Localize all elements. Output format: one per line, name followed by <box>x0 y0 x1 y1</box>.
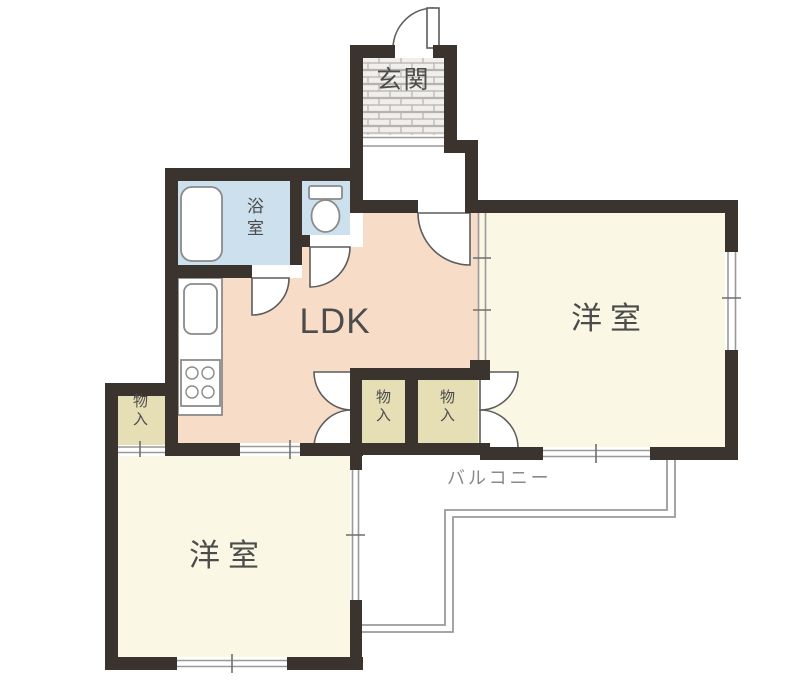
western-room-lower-label: 洋室 <box>163 540 293 571</box>
storage-ldk-right-label: 物入 <box>439 389 454 425</box>
toilet-icon <box>309 186 342 232</box>
floor-plan: 玄関 LDK 浴室 洋室 洋室 物入 物入 物入 バルコニー <box>0 0 800 691</box>
bathroom-label: 浴室 <box>245 197 262 241</box>
entrance-label: 玄関 <box>363 68 444 93</box>
stove-icon <box>181 360 220 406</box>
floor-plan-drawing <box>0 0 800 691</box>
storage-ldk-left-label: 物入 <box>375 389 390 425</box>
balcony-label: バルコニー <box>447 469 552 487</box>
bathtub-icon <box>181 187 222 261</box>
kitchen-sink-icon <box>184 284 217 334</box>
entrance-door-icon <box>393 8 439 58</box>
ldk-label: LDK <box>270 304 400 339</box>
entrance-step <box>363 138 444 147</box>
storage-lower-label: 物入 <box>132 393 147 429</box>
kitchen-counter-icon <box>178 278 222 415</box>
western-room-right-label: 洋室 <box>545 303 675 334</box>
